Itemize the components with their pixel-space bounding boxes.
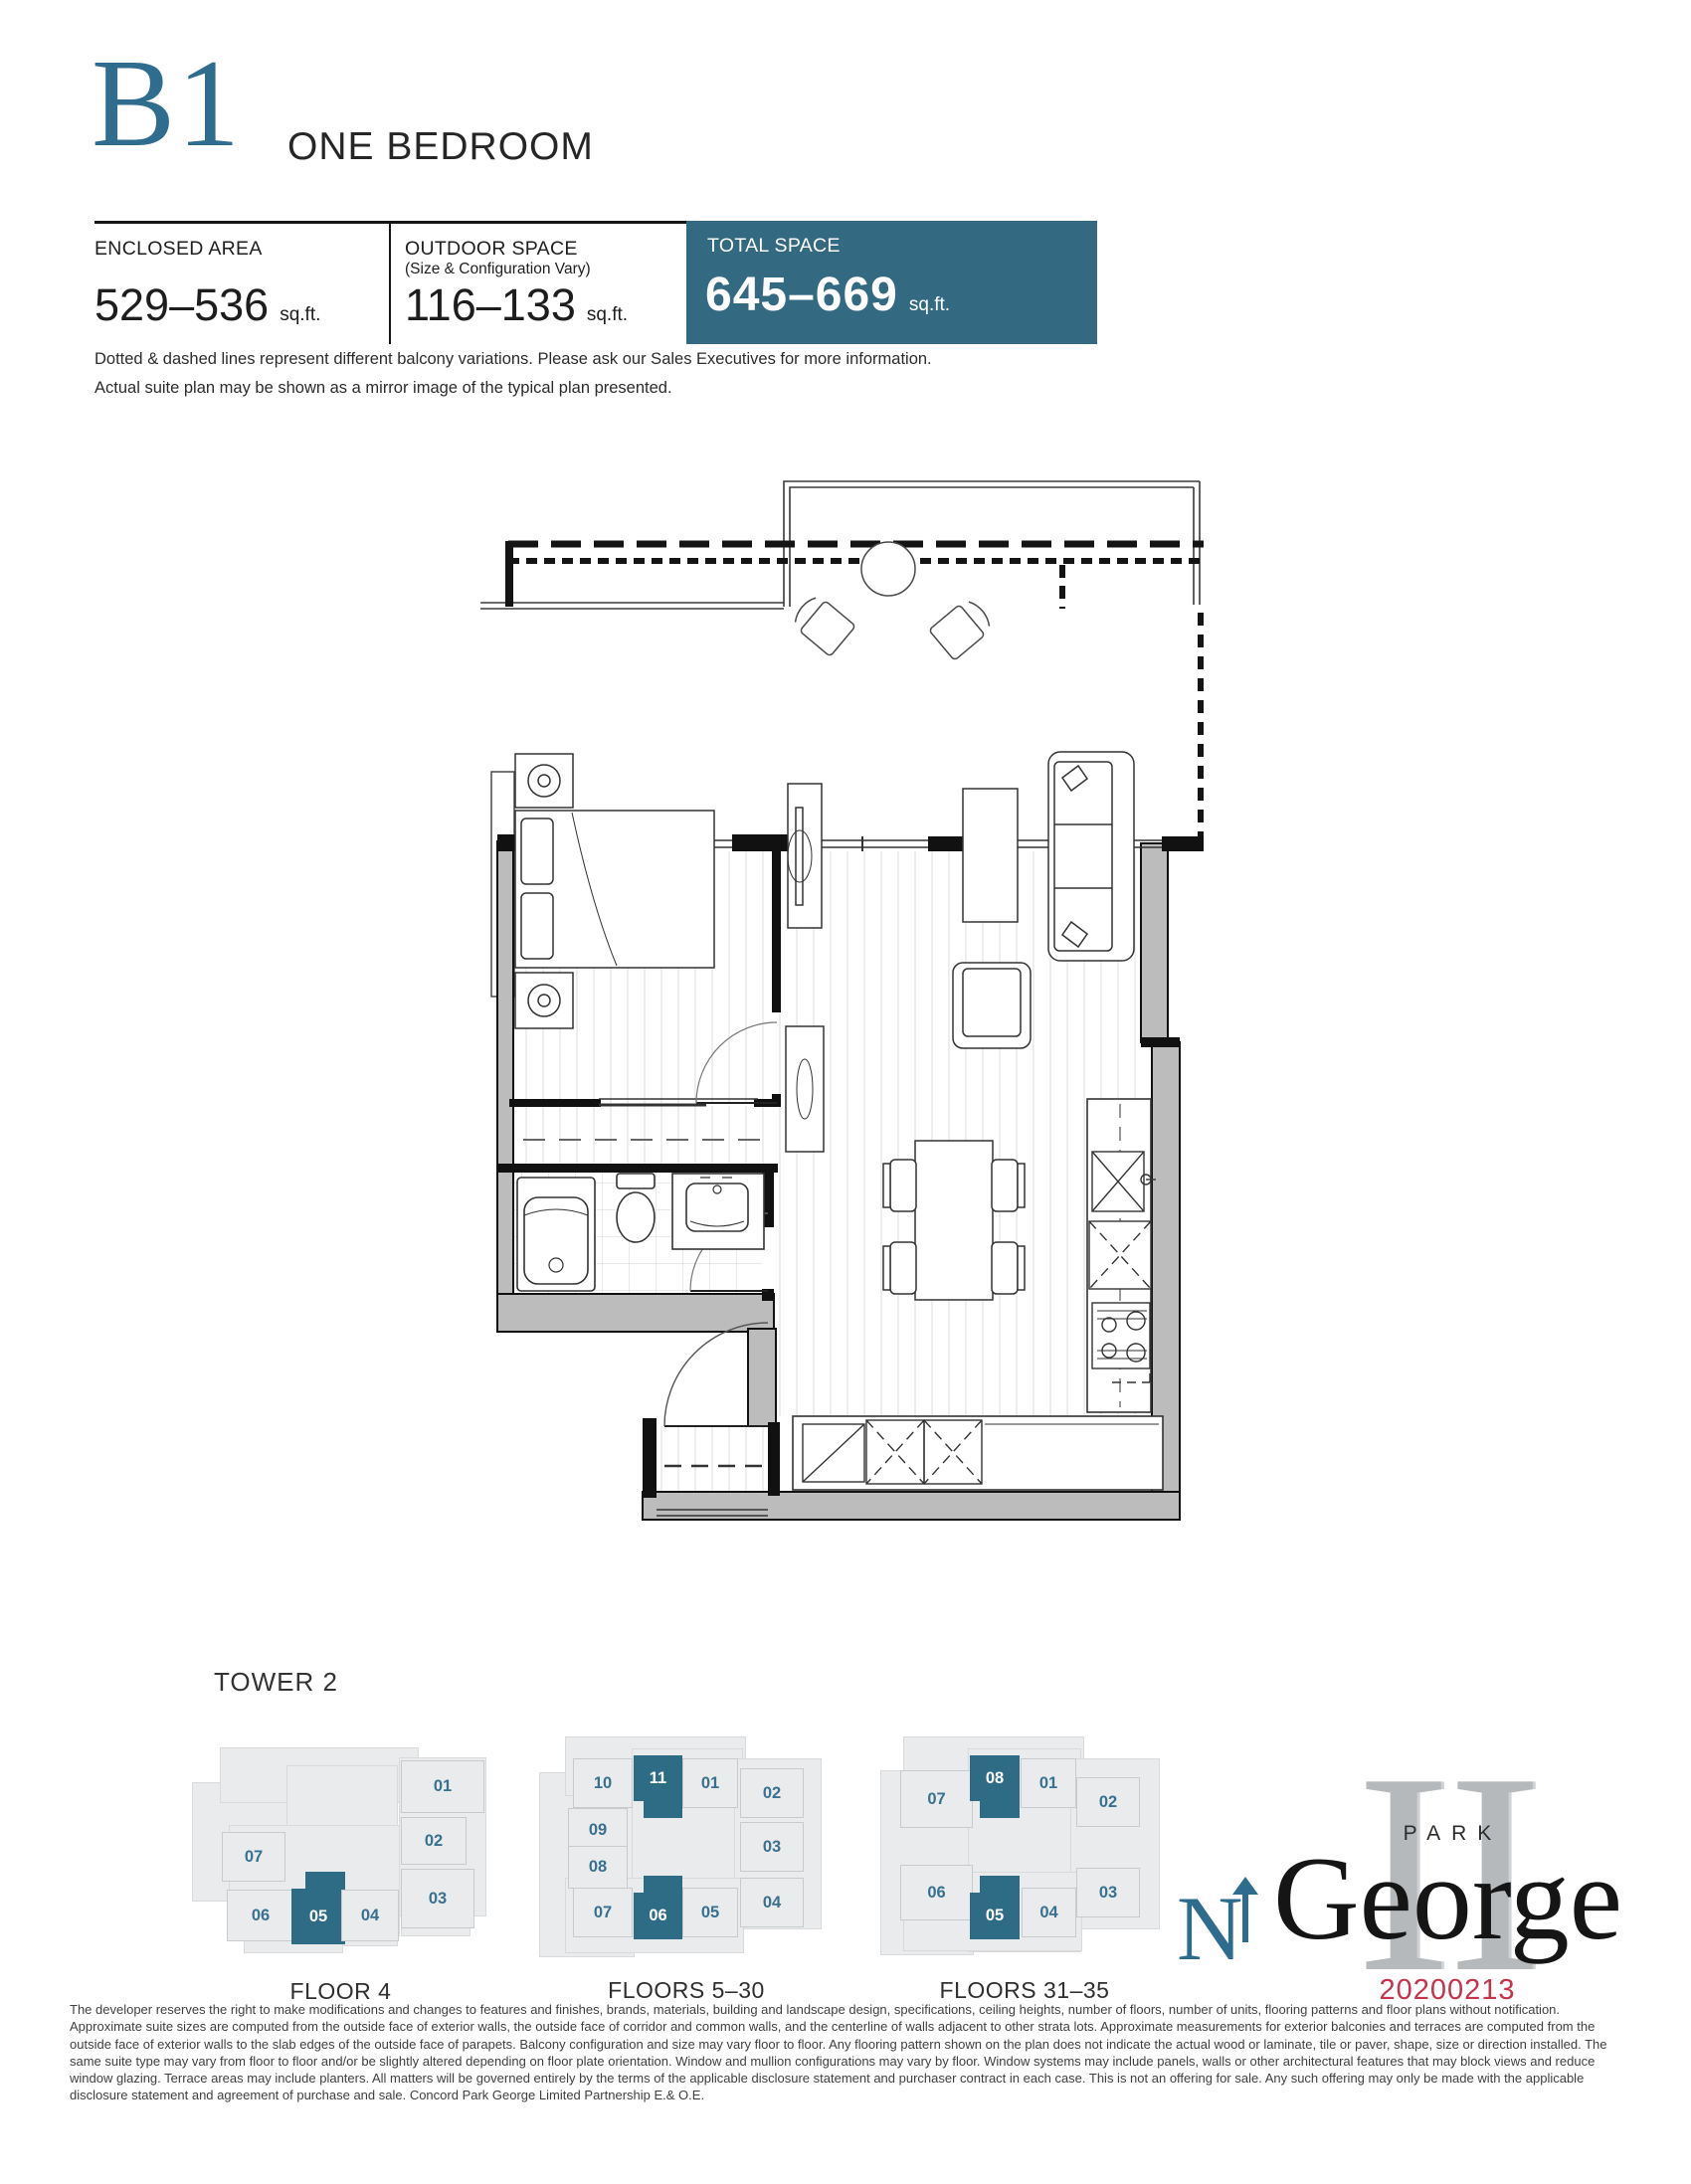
outdoor-space-unit: sq.ft. [587,304,628,326]
keyplan-unit-05-tab [305,1872,345,1890]
keyplan-unit-06-tab [644,1876,682,1893]
keyplan-unit-03: 03 [401,1869,474,1928]
keyplan-unit-06: 06 [227,1890,294,1941]
park-george-logo: II PARK George 20200213 [1273,1691,1621,2019]
keyplan-unit-10: 10 [573,1758,633,1808]
keyplan-unit-03: 03 [740,1822,804,1872]
plan-code: B1 [92,36,242,174]
total-space-unit: sq.ft. [909,294,950,316]
keyplan-unit-08-highlighted: 08 [970,1755,1020,1801]
total-space-card: TOTAL SPACE 645–669 sq.ft. [686,221,1097,344]
keyplan-unit-07: 07 [222,1832,285,1882]
keyplan-floor-4: 01 02 03 07 06 05 04 FLOOR 4 [184,1737,497,2011]
keyplan-unit-06: 06 [900,1865,973,1920]
plan-type: ONE BEDROOM [287,125,594,169]
keyplan-unit-08-tab [980,1801,1020,1818]
keyplan-unit-01: 01 [1021,1758,1076,1808]
keyplan-floor-label: FLOORS 31–35 [875,1977,1174,2004]
keyplan-unit-05-highlighted: 05 [970,1893,1020,1939]
keyplan-unit-02: 02 [401,1817,467,1865]
north-compass: N [1177,1883,1266,1982]
outdoor-space-value: 116–133 [405,279,576,331]
keyplan-unit-06-highlighted: 06 [634,1893,682,1939]
keyplan-floors-31-35: 07 08 01 02 06 05 04 03 FLOORS 31–35 [875,1730,1174,2009]
keyplan-unit-02: 02 [740,1768,804,1818]
keyplan-unit-01: 01 [682,1758,738,1808]
keyplan-unit-08: 08 [568,1846,628,1889]
enclosed-area-card: ENCLOSED AREA 529–536 sq.ft. [94,221,389,344]
keyplan-unit-04: 04 [341,1890,399,1941]
keyplan-floor-label: FLOORS 5–30 [537,1977,836,2004]
keyplan-unit-11-highlighted: 11 [634,1755,682,1801]
legal-disclaimer: The developer reserves the right to make… [70,2001,1633,2104]
keyplan-unit-04: 04 [1022,1888,1076,1937]
tower-title: TOWER 2 [214,1667,338,1698]
outdoor-space-sublabel: (Size & Configuration Vary) [405,261,591,278]
keyplan-unit-07: 07 [573,1888,633,1937]
brochure-page: B1 ONE BEDROOM ENCLOSED AREA 529–536 sq.… [0,0,1691,2184]
keyplan-unit-05: 05 [682,1888,738,1937]
enclosed-area-unit: sq.ft. [280,304,320,326]
keyplan-unit-07: 07 [900,1770,973,1828]
outdoor-space-card: OUTDOOR SPACE (Size & Configuration Vary… [389,221,687,344]
enclosed-area-value: 529–536 [94,279,269,331]
mirror-note: Actual suite plan may be shown as a mirr… [94,379,672,398]
total-space-label: TOTAL SPACE [707,235,841,258]
logo-george-text: George [1273,1830,1621,1967]
keyplan-unit-04: 04 [740,1878,804,1927]
total-space-value: 645–669 [705,268,898,322]
keyplan-unit-05-tab [980,1876,1020,1893]
floor-plan-drawing [468,457,1223,1542]
keyplan-unit-05-highlighted: 05 [291,1889,345,1944]
keyplan-unit-02: 02 [1076,1777,1140,1827]
keyplan-unit-03: 03 [1076,1868,1140,1917]
enclosed-area-label: ENCLOSED AREA [94,238,263,261]
keyplan-unit-01: 01 [401,1760,484,1813]
keyplan-floors-5-30: 10 11 01 02 09 03 08 07 06 05 04 FLOORS … [537,1730,836,2009]
balcony-note: Dotted & dashed lines represent differen… [94,350,932,369]
north-arrow-icon [1232,1877,1258,1942]
keyplan-unit-11-tab [644,1801,682,1818]
outdoor-space-label: OUTDOOR SPACE [405,238,578,261]
